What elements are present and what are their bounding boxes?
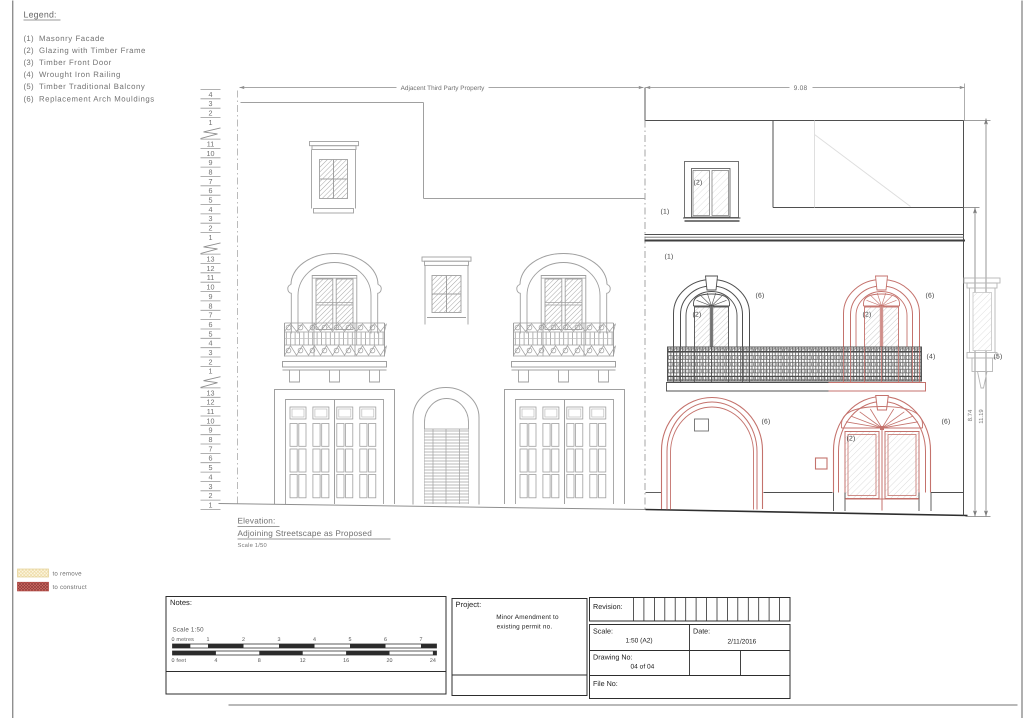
svg-text:(2): (2) [863,312,872,319]
svg-text:5: 5 [209,196,213,205]
svg-text:(6): (6) [942,419,951,426]
svg-text:7: 7 [209,311,213,320]
svg-text:Timber Front Door: Timber Front Door [39,58,112,67]
svg-text:8: 8 [209,168,213,177]
svg-text:11: 11 [207,139,214,148]
svg-text:Minor Amendment to: Minor Amendment to [496,614,559,621]
svg-text:7: 7 [420,637,423,643]
svg-text:1: 1 [207,637,210,643]
svg-text:Wrought Iron Railing: Wrought Iron Railing [39,70,121,79]
svg-text:6: 6 [209,320,213,329]
svg-text:8: 8 [258,658,261,664]
svg-text:0 metres: 0 metres [172,637,195,643]
svg-text:(6): (6) [926,293,935,300]
svg-text:9.08: 9.08 [794,85,808,92]
svg-text:Timber Traditional Balcony: Timber Traditional Balcony [39,82,145,91]
svg-text:2: 2 [242,637,245,643]
svg-text:Glazing with Timber Frame: Glazing with Timber Frame [39,46,146,55]
svg-text:9: 9 [209,158,213,167]
svg-text:4: 4 [214,658,217,664]
svg-text:Scale 1/50: Scale 1/50 [238,542,267,549]
svg-text:Scale:: Scale: [593,627,613,636]
svg-text:13: 13 [207,255,215,264]
svg-text:(2): (2) [693,312,702,319]
svg-text:Masonry Facade: Masonry Facade [39,34,105,43]
svg-text:6: 6 [384,637,387,643]
svg-text:4: 4 [209,339,213,348]
svg-text:Scale 1:50: Scale 1:50 [173,627,205,634]
svg-text:8: 8 [209,435,213,444]
svg-text:(2): (2) [24,46,35,55]
svg-text:2: 2 [209,224,213,233]
svg-text:1: 1 [209,367,213,376]
svg-text:Date:: Date: [693,627,710,636]
svg-text:1: 1 [209,501,213,510]
svg-text:(5): (5) [24,82,35,91]
svg-text:(1): (1) [665,254,674,261]
svg-text:4: 4 [313,637,316,643]
svg-text:4: 4 [209,472,213,481]
svg-text:12: 12 [300,658,306,664]
svg-text:(6): (6) [756,293,765,300]
svg-text:Adjacent Third Party Property: Adjacent Third Party Property [401,85,486,92]
svg-text:3: 3 [209,214,213,223]
svg-text:2: 2 [209,357,213,366]
svg-text:File No:: File No: [593,679,618,688]
svg-text:4: 4 [209,205,213,214]
svg-text:6: 6 [209,186,213,195]
svg-text:(4): (4) [24,70,35,79]
svg-text:7: 7 [209,177,213,186]
svg-text:(6): (6) [762,419,771,426]
svg-text:(5): (5) [994,354,1003,361]
svg-text:10: 10 [207,149,215,158]
svg-text:Revision:: Revision: [593,602,623,611]
svg-text:11: 11 [207,273,214,282]
svg-text:existing permit no.: existing permit no. [497,624,553,631]
svg-text:(1): (1) [24,34,35,43]
svg-text:2/11/2016: 2/11/2016 [728,639,757,646]
svg-text:Project:: Project: [456,600,482,609]
svg-text:Legend:: Legend: [24,10,57,20]
svg-text:3: 3 [209,99,213,108]
svg-text:3: 3 [278,637,281,643]
svg-text:to construct: to construct [53,584,87,591]
svg-text:8.74: 8.74 [967,409,974,421]
svg-text:1:50 (A2): 1:50 (A2) [626,638,653,645]
svg-text:6: 6 [209,454,213,463]
svg-text:(2): (2) [847,436,856,443]
svg-text:12: 12 [207,398,215,407]
svg-text:5: 5 [209,329,213,338]
svg-text:16: 16 [343,658,349,664]
svg-text:3: 3 [209,348,213,357]
svg-text:Notes:: Notes: [170,598,192,607]
svg-text:11: 11 [207,407,214,416]
svg-text:(6): (6) [24,94,35,103]
svg-text:to remove: to remove [53,571,83,578]
svg-text:2: 2 [209,491,213,500]
svg-text:04 of 04: 04 of 04 [631,664,655,671]
svg-text:2: 2 [209,109,213,118]
svg-text:Elevation:: Elevation: [238,517,276,526]
svg-text:3: 3 [209,482,213,491]
svg-text:5: 5 [209,463,213,472]
svg-text:4: 4 [209,90,213,99]
svg-text:10: 10 [207,416,215,425]
svg-text:Adjoining Streetscape as Propo: Adjoining Streetscape as Proposed [238,529,373,538]
svg-text:10: 10 [207,283,215,292]
svg-text:5: 5 [349,637,352,643]
svg-text:12: 12 [207,264,215,273]
svg-text:(1): (1) [661,209,670,216]
svg-text:24: 24 [430,658,436,664]
svg-text:7: 7 [209,444,213,453]
svg-text:13: 13 [207,388,215,397]
svg-text:1: 1 [209,233,213,242]
svg-text:9: 9 [209,292,213,301]
svg-text:1: 1 [209,118,213,127]
svg-text:Replacement Arch Mouldings: Replacement Arch Mouldings [39,94,155,103]
svg-text:Drawing No:: Drawing No: [593,653,633,662]
svg-text:0 feet: 0 feet [172,658,187,664]
svg-text:20: 20 [387,658,393,664]
svg-text:(2): (2) [694,180,703,187]
svg-text:8: 8 [209,301,213,310]
svg-text:(3): (3) [24,58,35,67]
svg-text:9: 9 [209,426,213,435]
svg-text:(4): (4) [927,354,936,361]
svg-text:11.19: 11.19 [978,409,985,424]
